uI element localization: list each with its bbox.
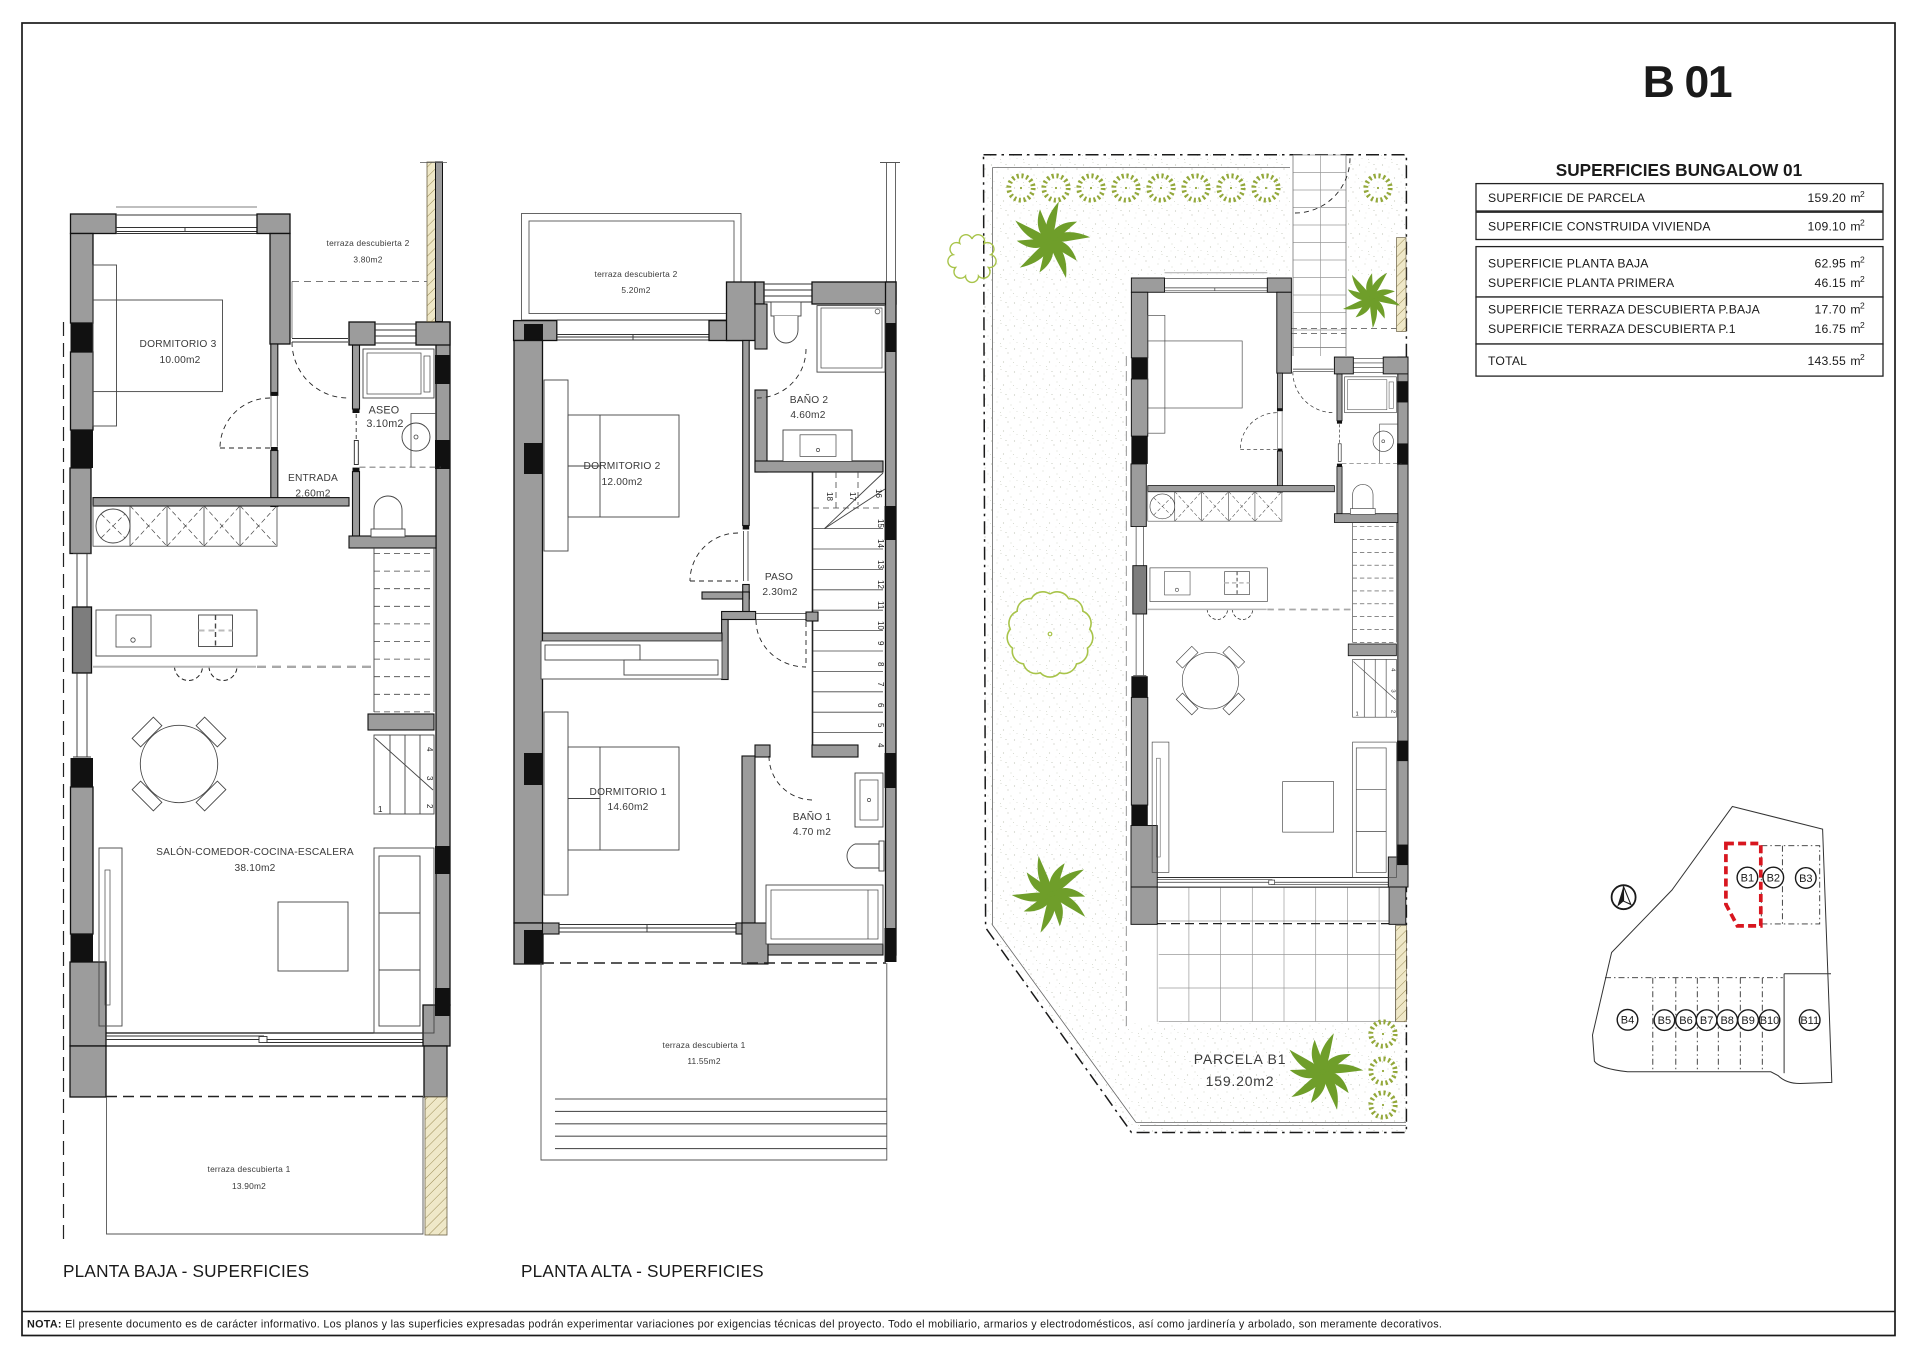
svg-text:B10: B10: [1760, 1015, 1780, 1027]
svg-text:terraza descubierta 1: terraza descubierta 1: [208, 1164, 291, 1174]
svg-text:2.60m2: 2.60m2: [295, 489, 330, 500]
svg-text:2: 2: [425, 804, 434, 809]
svg-text:4.60m2: 4.60m2: [790, 410, 825, 421]
svg-text:B 01: B 01: [1643, 58, 1732, 107]
svg-text:SALÓN-COMEDOR-COCINA-ESCALERA: SALÓN-COMEDOR-COCINA-ESCALERA: [156, 845, 354, 858]
svg-text:m: m: [1847, 276, 1861, 290]
svg-text:7: 7: [876, 682, 885, 687]
svg-text:m: m: [1847, 191, 1861, 205]
svg-text:2: 2: [1860, 301, 1865, 311]
svg-text:SUPERFICIES BUNGALOW 01: SUPERFICIES BUNGALOW 01: [1556, 160, 1803, 180]
svg-text:159.20m2: 159.20m2: [1206, 1073, 1275, 1089]
svg-text:1: 1: [378, 805, 383, 814]
svg-text:terraza descubierta 2: terraza descubierta 2: [327, 238, 410, 248]
svg-text:9: 9: [876, 641, 885, 646]
svg-text:2: 2: [1860, 255, 1865, 265]
svg-text:4: 4: [876, 743, 885, 748]
svg-text:46.15: 46.15: [1815, 276, 1847, 290]
svg-text:SUPERFICIE PLANTA PRIMERA: SUPERFICIE PLANTA PRIMERA: [1488, 276, 1675, 290]
svg-text:terraza descubierta 1: terraza descubierta 1: [663, 1040, 746, 1050]
svg-text:2: 2: [1860, 274, 1865, 284]
svg-text:SUPERFICIE PLANTA BAJA: SUPERFICIE PLANTA BAJA: [1488, 257, 1649, 271]
svg-text:11: 11: [876, 601, 885, 610]
svg-text:m: m: [1847, 220, 1861, 234]
svg-text:DORMITORIO 2: DORMITORIO 2: [584, 461, 661, 472]
svg-text:SUPERFICIE TERRAZA DESCUBIERTA: SUPERFICIE TERRAZA DESCUBIERTA P.BAJA: [1488, 303, 1761, 317]
svg-text:DORMITORIO 1: DORMITORIO 1: [590, 787, 667, 798]
svg-text:3: 3: [425, 776, 434, 781]
svg-text:10.00m2: 10.00m2: [159, 355, 200, 366]
svg-text:62.95: 62.95: [1815, 257, 1847, 271]
svg-text:2: 2: [1860, 352, 1865, 362]
svg-text:5.20m2: 5.20m2: [621, 285, 650, 295]
svg-text:m: m: [1847, 322, 1861, 336]
svg-text:B6: B6: [1679, 1015, 1692, 1027]
svg-text:14.60m2: 14.60m2: [607, 802, 648, 813]
svg-text:16: 16: [874, 489, 883, 498]
svg-text:109.10: 109.10: [1808, 220, 1846, 234]
svg-text:TOTAL: TOTAL: [1488, 354, 1527, 368]
svg-text:B5: B5: [1658, 1015, 1671, 1027]
svg-text:2: 2: [1860, 189, 1865, 199]
svg-text:B11: B11: [1800, 1015, 1819, 1027]
svg-text:BAÑO 2: BAÑO 2: [790, 393, 829, 406]
svg-text:B2: B2: [1767, 872, 1780, 884]
svg-text:BAÑO 1: BAÑO 1: [793, 810, 832, 823]
svg-text:5: 5: [876, 723, 885, 728]
svg-text:38.10m2: 38.10m2: [234, 863, 275, 874]
svg-text:m: m: [1847, 354, 1861, 368]
svg-text:B9: B9: [1741, 1015, 1754, 1027]
svg-text:11.55m2: 11.55m2: [687, 1056, 721, 1066]
svg-text:PASO: PASO: [765, 572, 793, 583]
svg-text:159.20: 159.20: [1808, 191, 1846, 205]
svg-text:143.55: 143.55: [1808, 354, 1846, 368]
svg-text:PARCELA B1: PARCELA B1: [1194, 1051, 1287, 1067]
svg-text:terraza descubierta 2: terraza descubierta 2: [595, 269, 678, 279]
svg-text:3.10m2: 3.10m2: [366, 418, 403, 430]
svg-text:8: 8: [876, 662, 885, 667]
svg-text:17: 17: [848, 492, 857, 501]
svg-text:17.70: 17.70: [1815, 303, 1847, 317]
svg-text:ASEO: ASEO: [369, 405, 400, 417]
svg-text:B7: B7: [1700, 1015, 1713, 1027]
svg-text:4: 4: [425, 747, 434, 752]
svg-text:16.75: 16.75: [1815, 322, 1847, 336]
svg-text:B8: B8: [1720, 1015, 1733, 1027]
svg-text:DORMITORIO 3: DORMITORIO 3: [140, 339, 217, 350]
svg-text:ENTRADA: ENTRADA: [288, 473, 338, 484]
svg-text:NOTA: El presente documento e: NOTA: El presente documento es de caráct…: [27, 1319, 1442, 1331]
svg-text:SUPERFICIE DE PARCELA: SUPERFICIE DE PARCELA: [1488, 191, 1646, 205]
svg-text:B3: B3: [1799, 873, 1812, 885]
svg-text:4.70 m2: 4.70 m2: [793, 827, 831, 838]
svg-text:12: 12: [876, 580, 885, 589]
svg-text:13.90m2: 13.90m2: [232, 1181, 266, 1191]
svg-text:13: 13: [876, 560, 885, 569]
svg-text:PLANTA ALTA - SUPERFICIES: PLANTA ALTA - SUPERFICIES: [521, 1261, 764, 1281]
svg-text:15: 15: [876, 519, 885, 528]
svg-text:6: 6: [876, 703, 885, 708]
svg-text:B1: B1: [1741, 872, 1754, 884]
svg-text:PLANTA BAJA - SUPERFICIES: PLANTA BAJA - SUPERFICIES: [63, 1261, 309, 1281]
svg-text:m: m: [1847, 303, 1861, 317]
svg-text:B4: B4: [1621, 1015, 1634, 1027]
svg-text:18: 18: [825, 492, 834, 501]
svg-text:12.00m2: 12.00m2: [601, 477, 642, 488]
svg-text:2: 2: [1860, 218, 1865, 228]
svg-text:SUPERFICIE CONSTRUIDA VIVIENDA: SUPERFICIE CONSTRUIDA VIVIENDA: [1488, 220, 1711, 234]
svg-text:3.80m2: 3.80m2: [353, 255, 382, 265]
svg-text:2.30m2: 2.30m2: [762, 587, 797, 598]
svg-text:10: 10: [876, 621, 885, 630]
svg-text:14: 14: [876, 539, 885, 548]
svg-text:SUPERFICIE TERRAZA DESCUBIERTA: SUPERFICIE TERRAZA DESCUBIERTA P.1: [1488, 322, 1736, 336]
svg-text:2: 2: [1860, 320, 1865, 330]
svg-text:m: m: [1847, 257, 1861, 271]
